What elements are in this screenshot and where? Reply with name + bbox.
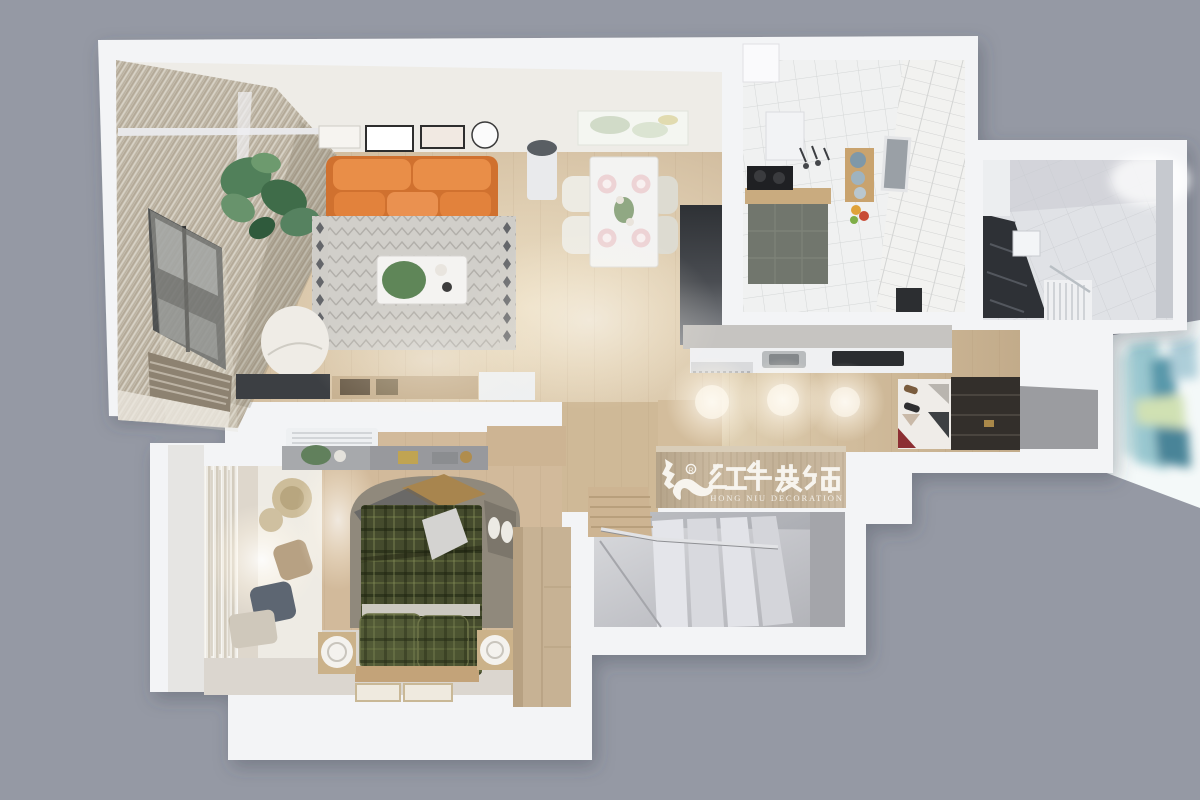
svg-text:R: R — [688, 466, 694, 475]
svg-text:HONG NIU DECORATION: HONG NIU DECORATION — [710, 493, 844, 503]
